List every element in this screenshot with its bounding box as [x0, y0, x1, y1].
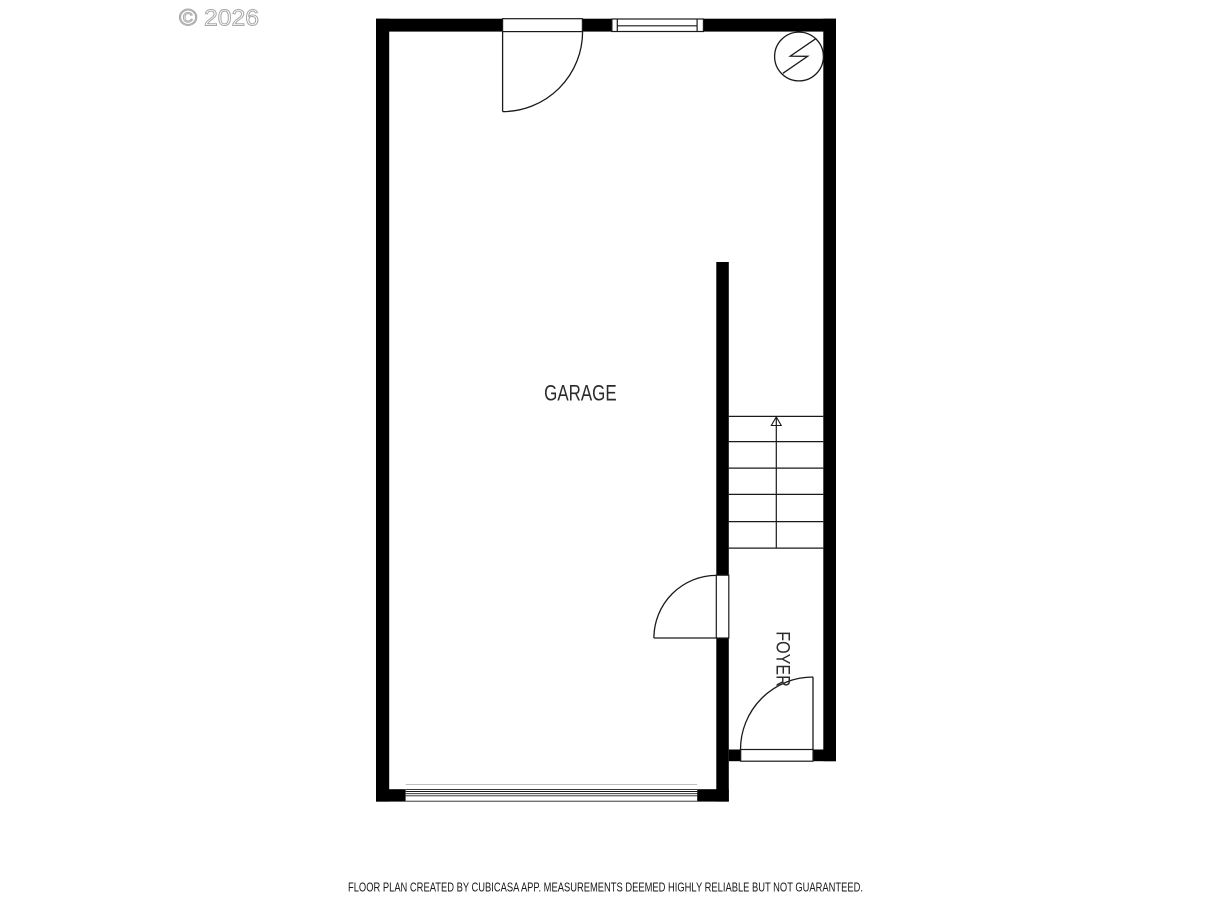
svg-text:FOYER: FOYER: [772, 631, 793, 687]
svg-text:GARAGE: GARAGE: [544, 381, 617, 406]
svg-text:FLOOR PLAN CREATED BY CUBICASA: FLOOR PLAN CREATED BY CUBICASA APP. MEAS…: [348, 880, 863, 895]
svg-text:© 2026: © 2026: [179, 5, 259, 31]
